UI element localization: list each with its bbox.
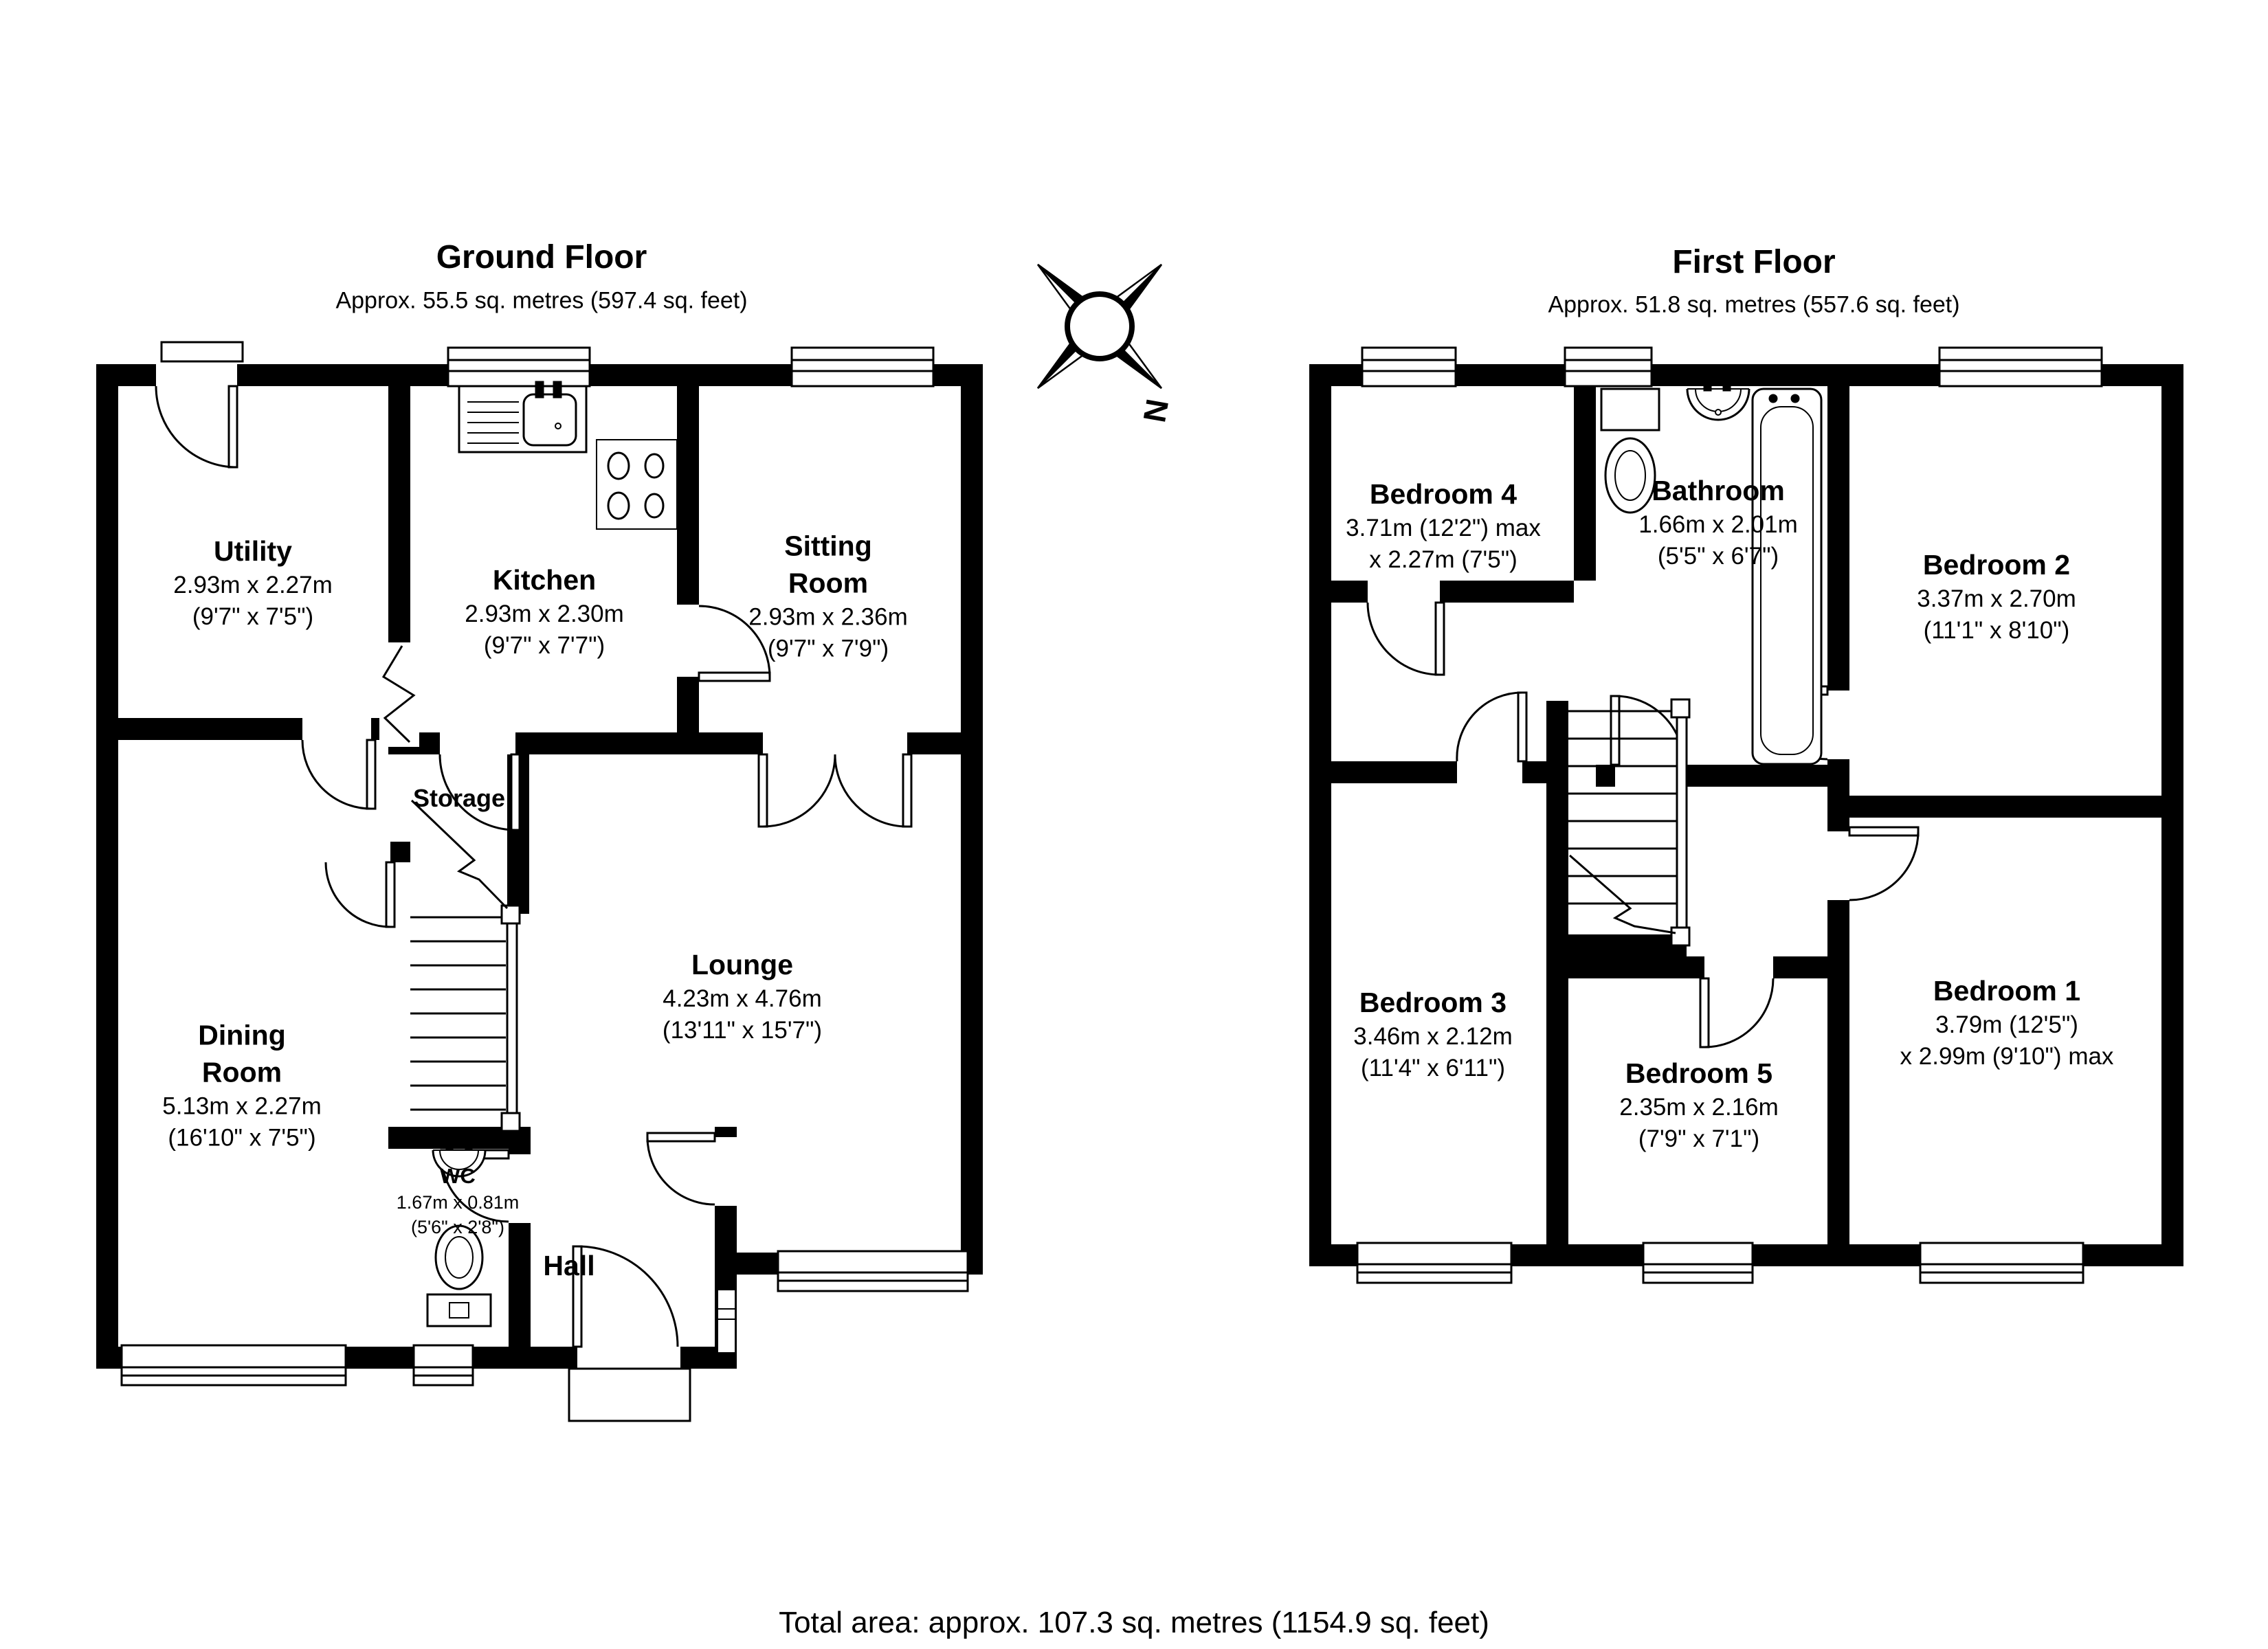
room-dims-imperial: (16'10" x 7'5") <box>159 1123 324 1154</box>
room-dims-imperial: (13'11" x 15'7") <box>663 1015 822 1046</box>
room-label-bedroom1: Bedroom 1 3.79m (12'5") x 2.99m (9'10") … <box>1900 972 2114 1073</box>
room-name: Bathroom <box>1638 472 1798 509</box>
room-label-bedroom2: Bedroom 2 3.37m x 2.70m (11'1" x 8'10") <box>1917 546 2076 647</box>
room-name: Hall <box>543 1247 594 1284</box>
compass-north-label: N <box>1137 396 1176 425</box>
gf-doors <box>156 342 911 1347</box>
room-label-kitchen: Kitchen 2.93m x 2.30m (9'7" x 7'7") <box>465 561 624 662</box>
room-label-wc: WC 1.67m x 0.81m (5'6" x 2'8") <box>397 1163 520 1239</box>
room-dims-imperial: x 2.99m (9'10") max <box>1900 1041 2114 1073</box>
gf-kitchen-sink-unit <box>459 382 586 452</box>
room-name: Bedroom 4 <box>1346 475 1541 513</box>
room-name: Utility <box>173 532 333 570</box>
room-dims-metric: 4.23m x 4.76m <box>663 983 822 1015</box>
room-dims-imperial: (9'7" x 7'9") <box>746 633 911 665</box>
room-dims-metric: 3.71m (12'2") max <box>1346 513 1541 544</box>
room-label-bedroom5: Bedroom 5 2.35m x 2.16m (7'9" x 7'1") <box>1619 1055 1779 1155</box>
room-name: Lounge <box>663 946 822 983</box>
room-name: Bedroom 1 <box>1900 972 2114 1009</box>
gf-walls <box>96 364 983 1369</box>
room-label-bedroom3: Bedroom 3 3.46m x 2.12m (11'4" x 6'11") <box>1353 984 1513 1084</box>
first-floor-title: First Floor <box>1672 243 1835 282</box>
room-dims-imperial: (11'4" x 6'11") <box>1353 1053 1513 1084</box>
ff-bathroom-bath <box>1753 389 1821 764</box>
room-dims-metric: 3.37m x 2.70m <box>1917 583 2076 615</box>
room-name: Bedroom 5 <box>1619 1055 1779 1092</box>
room-label-bathroom: Bathroom 1.66m x 2.01m (5'5" x 6'7") <box>1638 472 1798 572</box>
gf-windows <box>122 348 968 1385</box>
room-name: Dining Room <box>159 1017 324 1091</box>
floorplan-page: N Ground Floor Approx. 55.5 sq. metres (… <box>0 0 2268 1649</box>
compass-circle <box>1067 294 1132 359</box>
room-label-dining-room: Dining Room 5.13m x 2.27m (16'10" x 7'5"… <box>159 1017 324 1155</box>
total-area-label: Total area: approx. 107.3 sq. metres (11… <box>779 1606 1489 1640</box>
gf-wc-toilet <box>427 1226 491 1326</box>
room-dims-imperial: (7'9" x 7'1") <box>1619 1123 1779 1155</box>
room-dims-imperial: (9'7" x 7'5") <box>173 601 333 633</box>
room-name: Sitting Room <box>746 528 911 602</box>
room-dims-imperial: (5'5" x 6'7") <box>1638 541 1798 572</box>
room-dims-metric: 2.93m x 2.27m <box>173 570 333 601</box>
room-dims-metric: 2.93m x 2.30m <box>465 598 624 630</box>
gf-stair-break-line <box>412 800 507 908</box>
room-dims-metric: 1.66m x 2.01m <box>1638 509 1798 541</box>
room-label-lounge: Lounge 4.23m x 4.76m (13'11" x 15'7") <box>663 946 822 1046</box>
room-dims-imperial: (11'1" x 8'10") <box>1917 615 2076 647</box>
room-label-bedroom4: Bedroom 4 3.71m (12'2") max x 2.27m (7'5… <box>1346 475 1541 576</box>
room-name: WC <box>397 1163 520 1191</box>
gf-openings <box>127 364 962 1369</box>
room-dims-imperial: (5'6" x 2'8") <box>397 1215 520 1239</box>
room-dims-metric: 3.79m (12'5") <box>1900 1009 2114 1041</box>
room-label-storage: Storage <box>413 782 505 815</box>
room-label-sitting-room: Sitting Room 2.93m x 2.36m (9'7" x 7'9") <box>746 528 911 666</box>
room-dims-imperial: (9'7" x 7'7") <box>465 630 624 662</box>
room-name: Storage <box>413 782 505 815</box>
first-floor-subtitle: Approx. 51.8 sq. metres (557.6 sq. feet) <box>1548 291 1959 319</box>
room-name: Kitchen <box>465 561 624 598</box>
gf-kitchen-hob <box>597 440 677 529</box>
room-dims-metric: 3.46m x 2.12m <box>1353 1021 1513 1053</box>
room-label-hall: Hall <box>543 1247 594 1284</box>
room-dims-metric: 1.67m x 0.81m <box>397 1191 520 1215</box>
room-dims-imperial: x 2.27m (7'5") <box>1346 544 1541 576</box>
room-dims-metric: 5.13m x 2.27m <box>159 1091 324 1123</box>
room-dims-metric: 2.35m x 2.16m <box>1619 1092 1779 1123</box>
room-label-utility: Utility 2.93m x 2.27m (9'7" x 7'5") <box>173 532 333 633</box>
ground-floor-subtitle: Approx. 55.5 sq. metres (597.4 sq. feet) <box>335 287 747 315</box>
room-name: Bedroom 2 <box>1917 546 2076 583</box>
ff-stair-break-line <box>1570 855 1676 933</box>
compass-rose: N <box>1000 234 1206 440</box>
gf-porch-step <box>569 1369 690 1421</box>
room-dims-metric: 2.93m x 2.36m <box>746 602 911 633</box>
ground-floor-title: Ground Floor <box>436 238 647 278</box>
room-name: Bedroom 3 <box>1353 984 1513 1021</box>
ff-stairs <box>1568 699 1689 945</box>
